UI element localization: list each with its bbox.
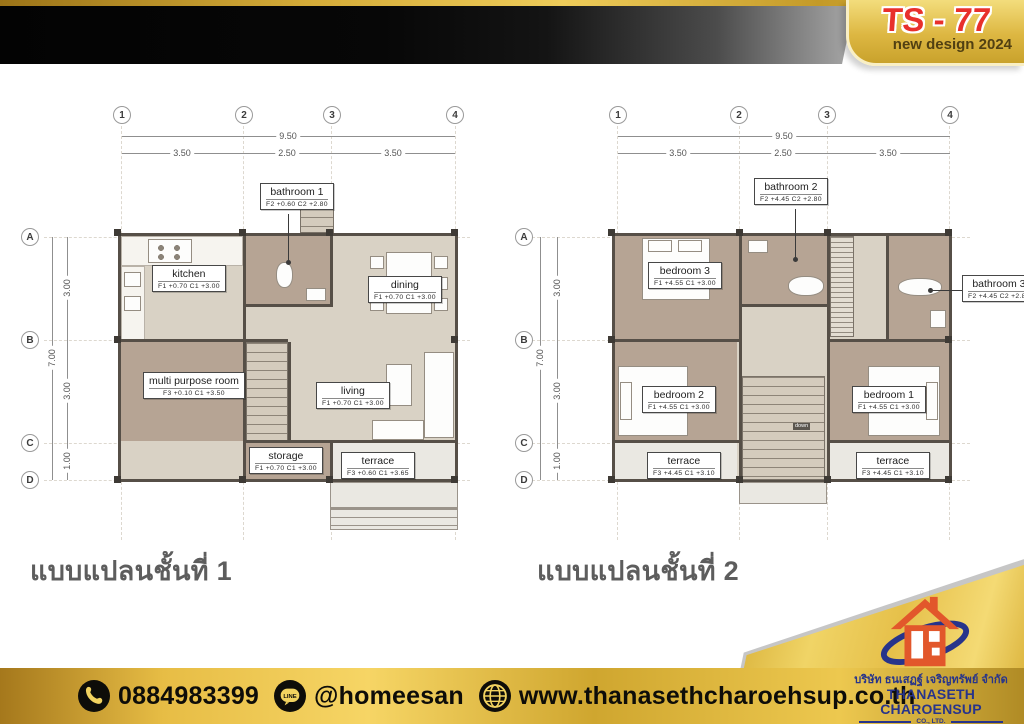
room-label-bathroom3: bathroom 3 F2 +4.45 C2 +2.80 (962, 275, 1024, 302)
wall (615, 440, 739, 443)
dim-line (67, 237, 68, 480)
room-level: F3 +0.10 C1 +3.50 (149, 388, 239, 397)
column-marker (114, 476, 121, 483)
model-badge: TS - 77 new design 2024 (846, 0, 1024, 66)
grid-bubble-col: 4 (941, 106, 959, 124)
grid-bubble-row: B (515, 331, 533, 349)
company-name-english: THANASETH CHAROENSUP (842, 687, 1020, 717)
column-marker (239, 229, 246, 236)
grid-bubble-col: 2 (235, 106, 253, 124)
furniture-basin (306, 288, 326, 301)
company-suffix-row: CO., LTD. (842, 718, 1020, 724)
dim-span: 3.00 (62, 276, 72, 300)
svg-text:LINE: LINE (283, 694, 296, 700)
furniture-stove (148, 239, 192, 263)
grid-bubble-col: 3 (818, 106, 836, 124)
room-name: bathroom 2 (760, 181, 822, 193)
phone-contact: 0884983399 (78, 680, 259, 712)
room-label-kitchen: kitchen F1 +0.70 C1 +3.00 (152, 265, 226, 292)
page: TS - 77 new design 2024 1 2 3 4 A B C D … (0, 0, 1024, 724)
room-label-bathroom2: bathroom 2 F2 +4.45 C2 +2.80 (754, 178, 828, 205)
room-level: F1 +4.55 C1 +3.00 (858, 402, 920, 411)
column-marker (451, 229, 458, 236)
terrace-steps (330, 508, 458, 530)
column-marker (608, 229, 615, 236)
furniture-pillow (620, 382, 632, 420)
room-name: bathroom 1 (266, 186, 328, 198)
dim-overall-height: 7.00 (535, 346, 545, 370)
room-name: terrace (653, 455, 715, 467)
room-level: F3 +4.45 C1 +3.10 (862, 468, 924, 477)
room-name: living (322, 385, 384, 397)
room-level: F3 +0.60 C1 +3.65 (347, 468, 409, 477)
terrace-extension (330, 482, 458, 508)
column-marker (945, 229, 952, 236)
furniture-sofa (372, 420, 424, 440)
column-marker (239, 476, 246, 483)
room-level: F1 +0.70 C1 +3.00 (255, 463, 317, 472)
room-label-terrace-right: terrace F3 +4.45 C1 +3.10 (856, 452, 930, 479)
dim-span: 3.50 (876, 148, 900, 158)
wall (246, 304, 333, 307)
line-icon: LINE (274, 680, 306, 712)
column-marker (608, 336, 615, 343)
leader-line (932, 290, 962, 291)
wall (330, 443, 333, 480)
room-name: terrace (862, 455, 924, 467)
grid-bubble-col: 1 (609, 106, 627, 124)
grid-bubble-row: D (21, 471, 39, 489)
dim-span: 2.50 (275, 148, 299, 158)
room-name: bedroom 3 (654, 265, 716, 277)
wall (330, 236, 333, 307)
dim-overall-height: 7.00 (47, 346, 57, 370)
column-marker (114, 336, 121, 343)
model-subtitle: new design 2024 (849, 36, 1024, 53)
grid-bubble-col: 3 (323, 106, 341, 124)
room-name: kitchen (158, 268, 220, 280)
line-contact: LINE @homeesan (274, 680, 464, 712)
wall (830, 339, 949, 342)
room-level: F2 +4.45 C2 +2.80 (968, 291, 1024, 300)
dim-span: 3.00 (552, 379, 562, 403)
stair-landing-extension (739, 482, 827, 504)
room-name: terrace (347, 455, 409, 467)
room-name: storage (255, 450, 317, 462)
dim-overall-width: 9.50 (276, 131, 300, 141)
grid-bubble-row: C (21, 434, 39, 452)
closet-hatch (830, 236, 854, 337)
room-label-dining: dining F1 +0.70 C1 +3.00 (368, 276, 442, 303)
grid-bubble-row: A (21, 228, 39, 246)
grid-bubble-col: 2 (730, 106, 748, 124)
room-level: F2 +0.60 C2 +2.80 (266, 199, 328, 208)
column-marker (945, 336, 952, 343)
furniture-basin (930, 310, 946, 328)
phone-icon (78, 680, 110, 712)
divider (859, 721, 911, 723)
room-name: bedroom 1 (858, 389, 920, 401)
furniture-chair (370, 256, 384, 269)
wall (246, 440, 455, 443)
leader-line (795, 209, 796, 259)
furniture-bathtub (788, 276, 824, 296)
room-level: F1 +0.70 C1 +3.00 (158, 281, 220, 290)
wall (739, 236, 742, 479)
leader-dot (928, 288, 933, 293)
column-marker (326, 229, 333, 236)
room-label-terrace-left: terrace F3 +4.45 C1 +3.10 (647, 452, 721, 479)
dim-span: 1.00 (62, 449, 72, 473)
leader-dot (793, 257, 798, 262)
floor1-caption: แบบแปลนชั้นที่ 1 (30, 549, 232, 592)
column-marker (114, 229, 121, 236)
wall (830, 440, 949, 443)
room-name: bedroom 2 (648, 389, 710, 401)
furniture-pillow (926, 382, 938, 420)
furniture-coffee-table (386, 364, 412, 406)
wall (288, 342, 291, 443)
column-marker (736, 229, 743, 236)
dim-span: 1.00 (552, 449, 562, 473)
header-black-bar (0, 6, 854, 64)
room-name: dining (374, 279, 436, 291)
furniture-sink (124, 272, 141, 287)
furniture-toilet (276, 262, 293, 288)
room-label-living: living F1 +0.70 C1 +3.00 (316, 382, 390, 409)
company-suffix: CO., LTD. (916, 718, 945, 724)
wall (886, 236, 889, 339)
room-label-bedroom2: bedroom 2 F1 +4.55 C1 +3.00 (642, 386, 716, 413)
furniture-sink (124, 296, 141, 311)
grid-bubble-col: 1 (113, 106, 131, 124)
column-marker (824, 229, 831, 236)
column-marker (824, 476, 831, 483)
room-label-multipurpose: multi purpose room F3 +0.10 C1 +3.50 (143, 372, 245, 399)
dim-span: 3.50 (170, 148, 194, 158)
leader-dot (286, 260, 291, 265)
contact-strip: 0884983399 LINE @homeesan www.thanasethc… (78, 676, 916, 716)
dim-line (557, 237, 558, 480)
furniture-chair (434, 256, 448, 269)
stair-direction-note: down (793, 423, 810, 430)
room-level: F1 +4.55 C1 +3.00 (654, 278, 716, 287)
floor2-caption: แบบแปลนชั้นที่ 2 (537, 549, 739, 592)
wall (742, 304, 827, 307)
room-label-bedroom3: bedroom 3 F1 +4.55 C1 +3.00 (648, 262, 722, 289)
column-marker (451, 336, 458, 343)
column-marker (608, 476, 615, 483)
room-level: F2 +4.45 C2 +2.80 (760, 194, 822, 203)
column-marker (326, 476, 333, 483)
wall (615, 339, 739, 342)
line-id: @homeesan (314, 682, 464, 711)
room-level: F1 +0.70 C1 +3.00 (322, 398, 384, 407)
model-code: TS - 77 (848, 3, 1024, 37)
dim-span: 3.50 (381, 148, 405, 158)
globe-icon (479, 680, 511, 712)
dim-span: 2.50 (771, 148, 795, 158)
company-block: บริษัท ธนเสฏฐ์ เจริญทรัพย์ จำกัด THANASE… (842, 674, 1020, 724)
furniture-bathtub (898, 278, 942, 296)
grid-bubble-row: A (515, 228, 533, 246)
furniture-pillow (678, 240, 702, 252)
furniture-basin (748, 240, 768, 253)
grid-bubble-row: D (515, 471, 533, 489)
room-level: F1 +0.70 C1 +3.00 (374, 292, 436, 301)
column-marker (451, 476, 458, 483)
room-name: multi purpose room (149, 375, 239, 387)
room-level: F3 +4.45 C1 +3.10 (653, 468, 715, 477)
room-label-bedroom1: bedroom 1 F1 +4.55 C1 +3.00 (852, 386, 926, 413)
dim-span: 3.00 (62, 379, 72, 403)
column-marker (736, 476, 743, 483)
furniture-pillow (648, 240, 672, 252)
grid-bubble-row: B (21, 331, 39, 349)
grid-bubble-col: 4 (446, 106, 464, 124)
room-level: F1 +4.55 C1 +3.00 (648, 402, 710, 411)
staircase (246, 342, 288, 441)
company-logo-icon (878, 592, 972, 676)
wall (121, 339, 288, 342)
column-marker (945, 476, 952, 483)
furniture-sofa (424, 352, 454, 438)
dim-span: 3.50 (666, 148, 690, 158)
staircase (742, 376, 825, 480)
divider (951, 721, 1003, 723)
room-label-terrace: terrace F3 +0.60 C1 +3.65 (341, 452, 415, 479)
grid-bubble-row: C (515, 434, 533, 452)
leader-line (288, 214, 289, 262)
phone-number: 0884983399 (118, 682, 259, 711)
room-label-storage: storage F1 +0.70 C1 +3.00 (249, 447, 323, 474)
dim-span: 3.00 (552, 276, 562, 300)
room-name: bathroom 3 (968, 278, 1024, 290)
dim-overall-width: 9.50 (772, 131, 796, 141)
room-label-bathroom1: bathroom 1 F2 +0.60 C2 +2.80 (260, 183, 334, 210)
